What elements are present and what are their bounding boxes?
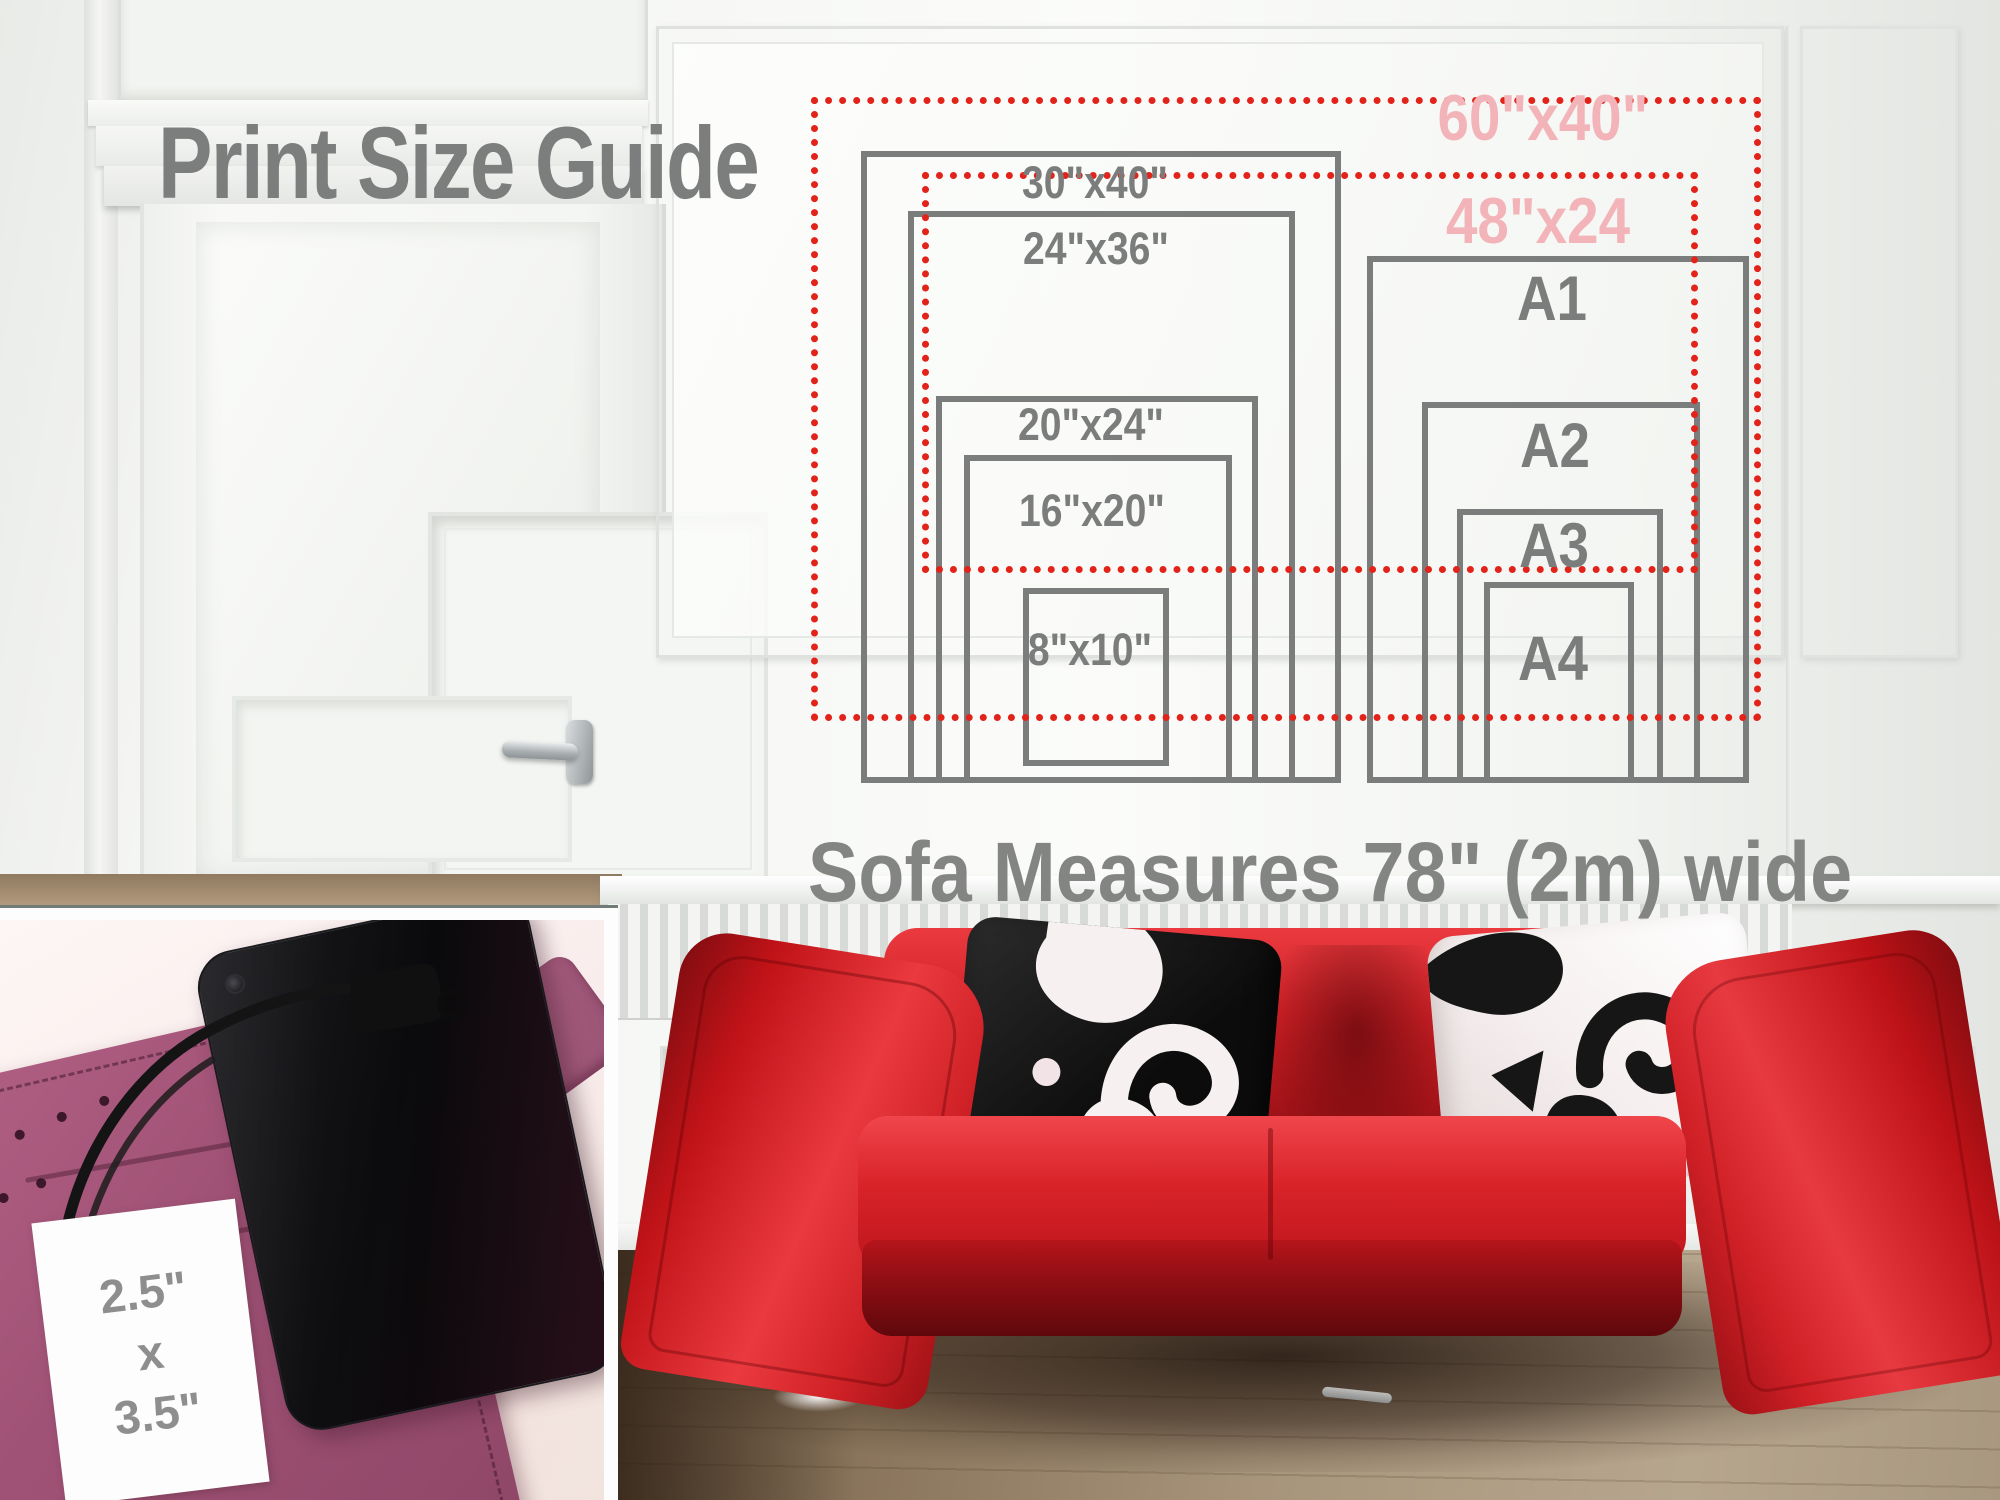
size-label-a1: A1 bbox=[1517, 268, 1587, 331]
size-label-a3: A3 bbox=[1519, 515, 1589, 578]
wall-panel-upper-left bbox=[118, 0, 648, 106]
print-size-guide-image: 30"x40" 24"x36" 20"x24" 16"x20" 8"x10" 6… bbox=[0, 0, 2000, 1500]
wall-panel-narrow bbox=[1800, 26, 1958, 658]
phone-case-photo: 2.5" x 3.5" bbox=[0, 920, 604, 1500]
case-size-line: x bbox=[134, 1321, 167, 1385]
phone-case-inset: 2.5" x 3.5" bbox=[0, 905, 618, 1500]
size-label-24x36: 24"x36" bbox=[1023, 226, 1169, 271]
size-label-60x40: 60"x40" bbox=[1438, 85, 1649, 150]
sofa-seat-seam bbox=[1268, 1128, 1273, 1260]
door-recessed-panel-lower bbox=[232, 696, 572, 862]
case-size-line: 2.5" bbox=[96, 1256, 190, 1327]
size-label-a2: A2 bbox=[1520, 415, 1590, 478]
sofa-caption: Sofa Measures 78" (2m) wide bbox=[808, 830, 1852, 914]
case-size-label: 2.5" x 3.5" bbox=[31, 1199, 269, 1500]
page-title: Print Size Guide bbox=[158, 112, 758, 214]
size-label-8x10: 8"x10" bbox=[1028, 627, 1152, 672]
door bbox=[196, 222, 600, 880]
size-label-a4: A4 bbox=[1518, 628, 1588, 691]
size-label-30x40: 30"x40" bbox=[1022, 160, 1168, 205]
size-label-48x24: 48"x24 bbox=[1446, 188, 1630, 253]
size-label-20x24: 20"x24" bbox=[1018, 402, 1164, 447]
case-size-line: 3.5" bbox=[111, 1377, 205, 1448]
floor-strip-under-door bbox=[0, 874, 622, 908]
size-label-16x20: 16"x20" bbox=[1019, 488, 1165, 533]
